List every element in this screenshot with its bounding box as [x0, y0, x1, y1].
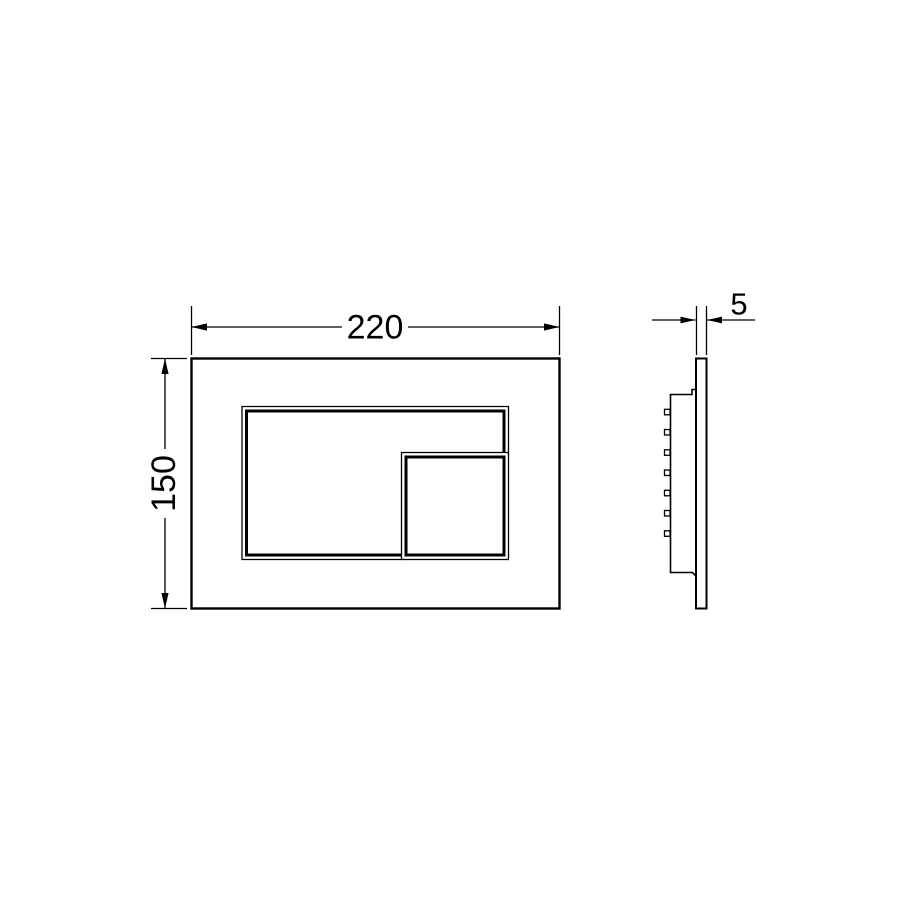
depth-dimension: 5: [652, 287, 755, 356]
mounting-clip: [665, 531, 671, 537]
side-view: [665, 359, 707, 609]
mounting-clip: [665, 511, 671, 517]
depth-arrowhead-left: [681, 317, 696, 324]
width-dimension-label: 220: [347, 309, 404, 347]
mounting-clips: [665, 409, 671, 536]
width-arrowhead-right: [544, 323, 560, 330]
width-arrowhead-left: [192, 323, 208, 330]
height-dimension: 150: [145, 359, 187, 609]
flush-plate-technical-drawing: 220 150: [0, 0, 900, 900]
mounting-clip: [665, 450, 671, 456]
front-view: [192, 359, 560, 609]
mounting-clip: [665, 409, 671, 415]
height-arrowhead-top: [161, 359, 168, 375]
mounting-clip: [665, 470, 671, 476]
width-dimension: 220: [192, 306, 560, 355]
technical-drawing-canvas: 220 150: [0, 0, 900, 900]
mounting-housing: [671, 390, 697, 577]
depth-dimension-label: 5: [730, 287, 747, 322]
height-dimension-label: 150: [145, 455, 183, 512]
mounting-clip: [665, 430, 671, 436]
small-flush-button-outer-line: [402, 453, 509, 560]
small-flush-button: [402, 453, 509, 560]
depth-arrowhead-right: [707, 317, 722, 324]
height-arrowhead-bottom: [161, 593, 168, 609]
mounting-clip: [665, 490, 671, 496]
side-plate-profile: [696, 359, 707, 609]
